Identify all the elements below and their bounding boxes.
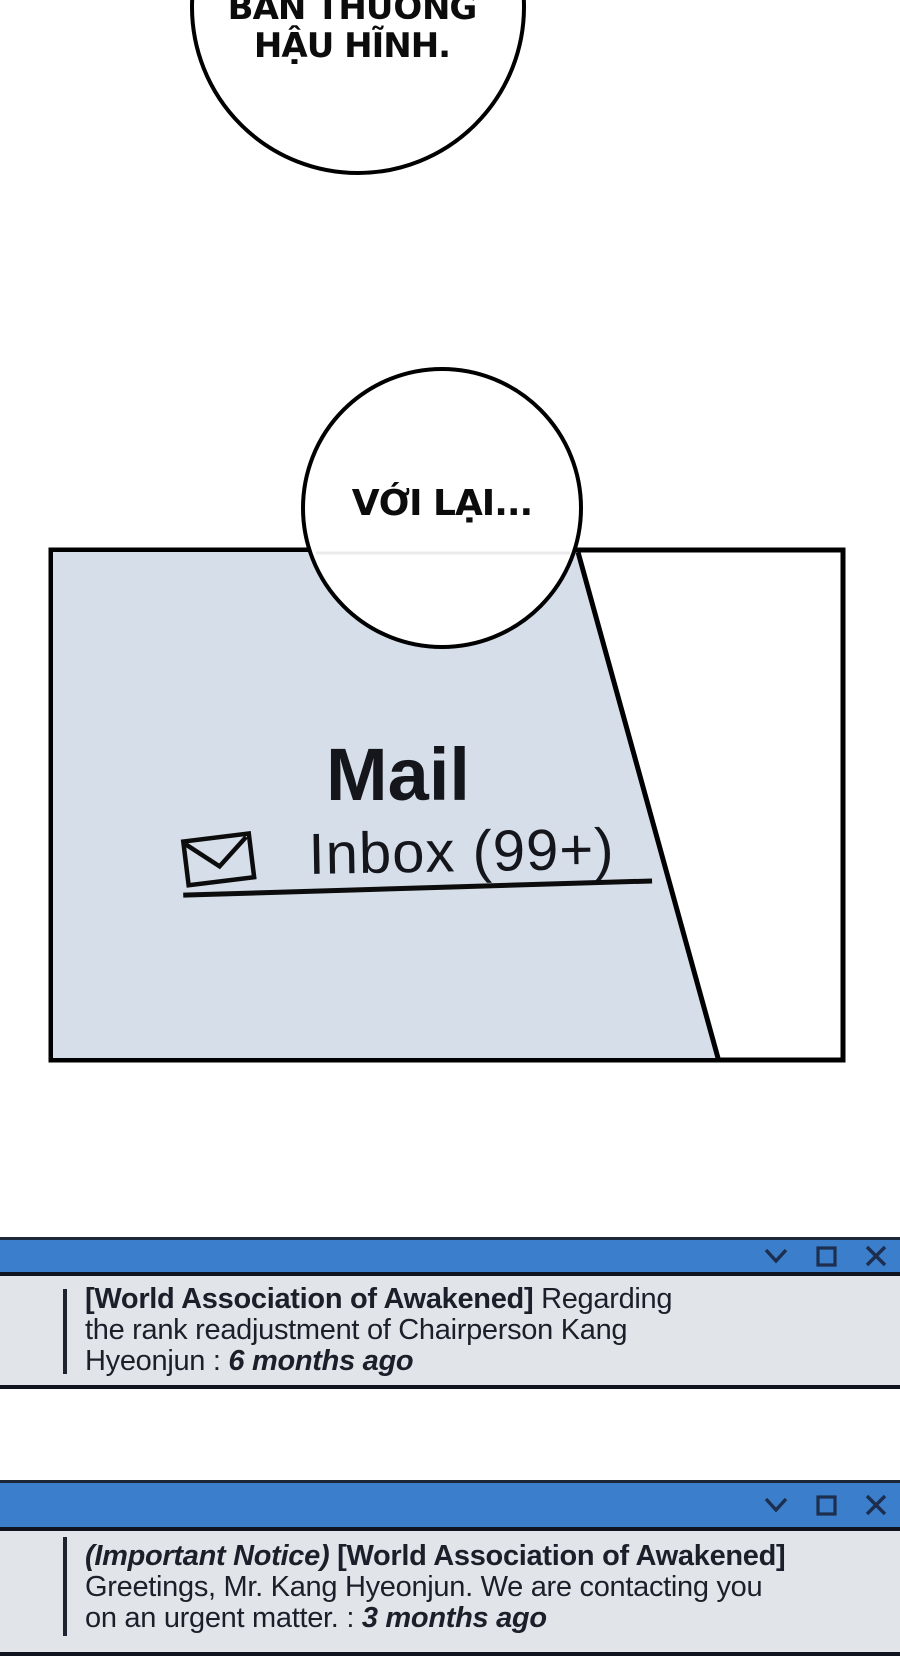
chevron-down-icon[interactable] [763,1496,789,1514]
bubble-middle-text: VỚI LẠI... [352,482,532,524]
close-icon[interactable] [864,1245,888,1267]
message-line: [World Association of Awakened] Regardin… [85,1284,672,1315]
close-icon[interactable] [864,1494,888,1516]
message-text: [World Association of Awakened] Regardin… [85,1284,672,1377]
message-line: (Important Notice) [World Association of… [85,1541,785,1572]
email-notification-window-1: [World Association of Awakened] Regardin… [0,1237,900,1389]
inbox-label: Inbox (99+) [308,817,615,887]
message-text: (Important Notice) [World Association of… [85,1541,785,1634]
bubble-top-line2: HẬU HĨNH. [254,25,450,66]
email-snippet-area[interactable]: [World Association of Awakened] Regardin… [0,1276,900,1389]
bubble-top-line1: BẢN THƯỞNG [228,0,477,28]
comic-page: BẢN THƯỞNG HẬU HĨNH. Mail Inbox (99+) VỚ… [0,0,900,1666]
maximize-icon[interactable] [816,1246,837,1267]
comic-artwork: BẢN THƯỞNG HẬU HĨNH. Mail Inbox (99+) VỚ… [0,0,900,1170]
email-snippet-area[interactable]: (Important Notice) [World Association of… [0,1531,900,1656]
window-titlebar[interactable] [0,1483,900,1531]
quote-bar [63,1537,67,1636]
quote-bar [63,1289,67,1374]
message-line: Greetings, Mr. Kang Hyeonjun. We are con… [85,1572,785,1603]
chevron-down-icon[interactable] [763,1247,789,1265]
message-line: the rank readjustment of Chairperson Kan… [85,1315,672,1346]
mail-app-title: Mail [326,733,470,816]
window-titlebar[interactable] [0,1240,900,1276]
message-line: on an urgent matter. : 3 months ago [85,1603,785,1634]
maximize-icon[interactable] [816,1495,837,1516]
email-notification-window-2: (Important Notice) [World Association of… [0,1480,900,1656]
message-line: Hyeonjun : 6 months ago [85,1346,672,1377]
